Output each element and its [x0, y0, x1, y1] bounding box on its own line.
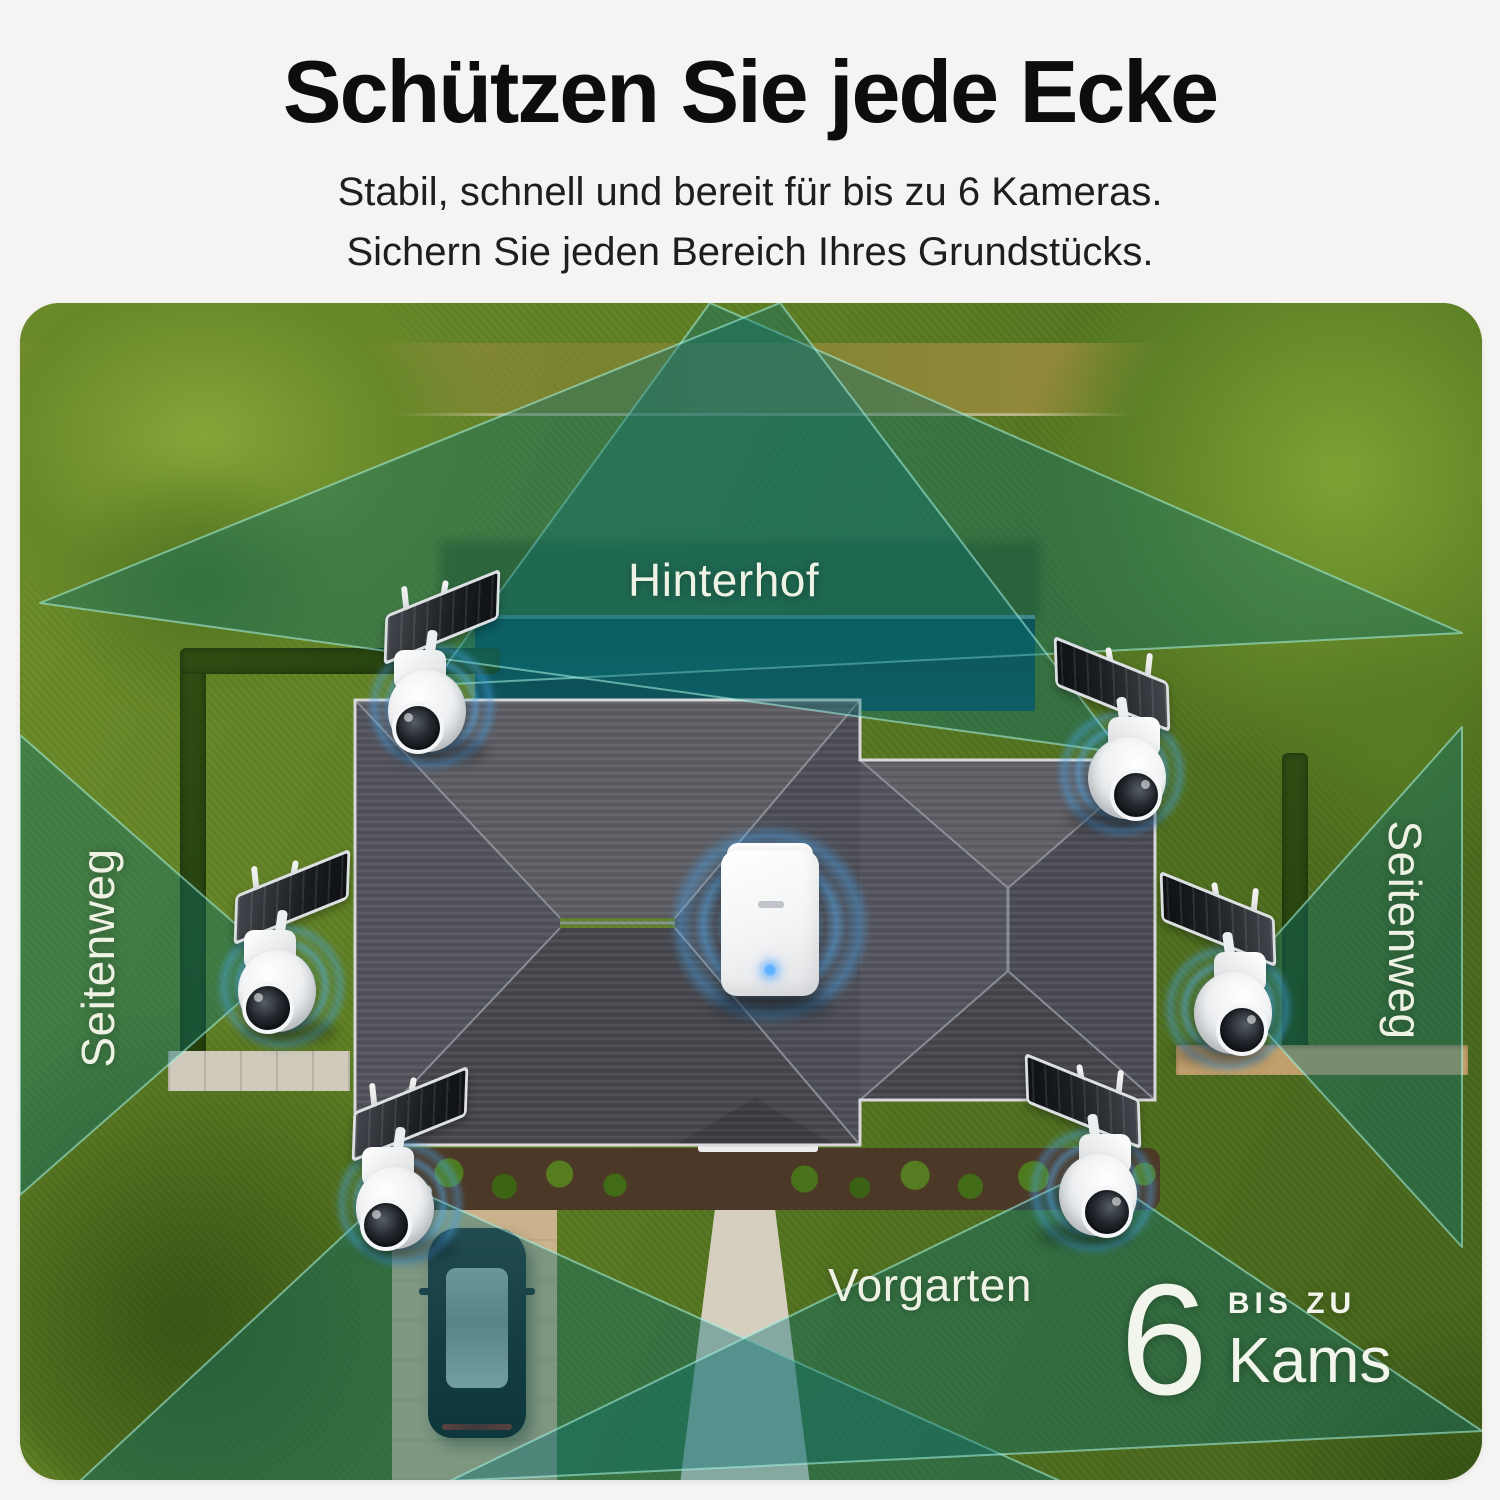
- label-side-left: Seitenweg: [75, 848, 121, 1068]
- camera-lens: [360, 1199, 412, 1251]
- camera-lens: [1081, 1186, 1133, 1238]
- camera-head: [356, 1167, 434, 1249]
- subtitle: Stabil, schnell und bereit für bis zu 6 …: [0, 162, 1500, 282]
- camera-head: [1194, 972, 1272, 1054]
- camera-lens: [1110, 769, 1162, 821]
- security-camera-front-left: [320, 1075, 480, 1275]
- security-camera-back-right: [1042, 645, 1202, 845]
- camera-head: [1088, 737, 1166, 819]
- brand-logo: [758, 901, 784, 908]
- security-camera-front-right: [1013, 1062, 1173, 1262]
- label-side-right: Seitenweg: [1382, 820, 1428, 1040]
- security-camera-back-left: [352, 578, 512, 778]
- subtitle-line-2: Sichern Sie jeden Bereich Ihres Grundstü…: [0, 222, 1500, 282]
- camera-count-badge: 6 BIS ZU Kams: [1120, 1261, 1391, 1419]
- camera-head: [1059, 1154, 1137, 1236]
- camera-head: [388, 670, 466, 752]
- base-station: [650, 805, 890, 1045]
- subtitle-line-1: Stabil, schnell und bereit für bis zu 6 …: [0, 162, 1500, 222]
- label-front-yard: Vorgarten: [828, 1258, 1032, 1312]
- aerial-property-photo: Hinterhof Seitenweg Seitenweg Vorgarten …: [20, 303, 1482, 1480]
- status-led: [763, 963, 777, 977]
- camera-head: [238, 950, 316, 1032]
- marketing-header: Schützen Sie jede Ecke Stabil, schnell u…: [0, 0, 1500, 282]
- security-camera-side-right: [1148, 880, 1308, 1080]
- camera-count-number: 6: [1120, 1261, 1208, 1419]
- camera-lens: [242, 982, 294, 1034]
- badge-unit: Kams: [1228, 1325, 1392, 1395]
- badge-prefix: BIS ZU: [1228, 1287, 1392, 1321]
- security-camera-side-left: [202, 858, 362, 1058]
- camera-lens: [392, 702, 444, 754]
- camera-count-text: BIS ZU Kams: [1228, 1261, 1392, 1395]
- camera-lens: [1216, 1004, 1268, 1056]
- page-title: Schützen Sie jede Ecke: [0, 0, 1500, 138]
- label-backyard: Hinterhof: [628, 553, 819, 607]
